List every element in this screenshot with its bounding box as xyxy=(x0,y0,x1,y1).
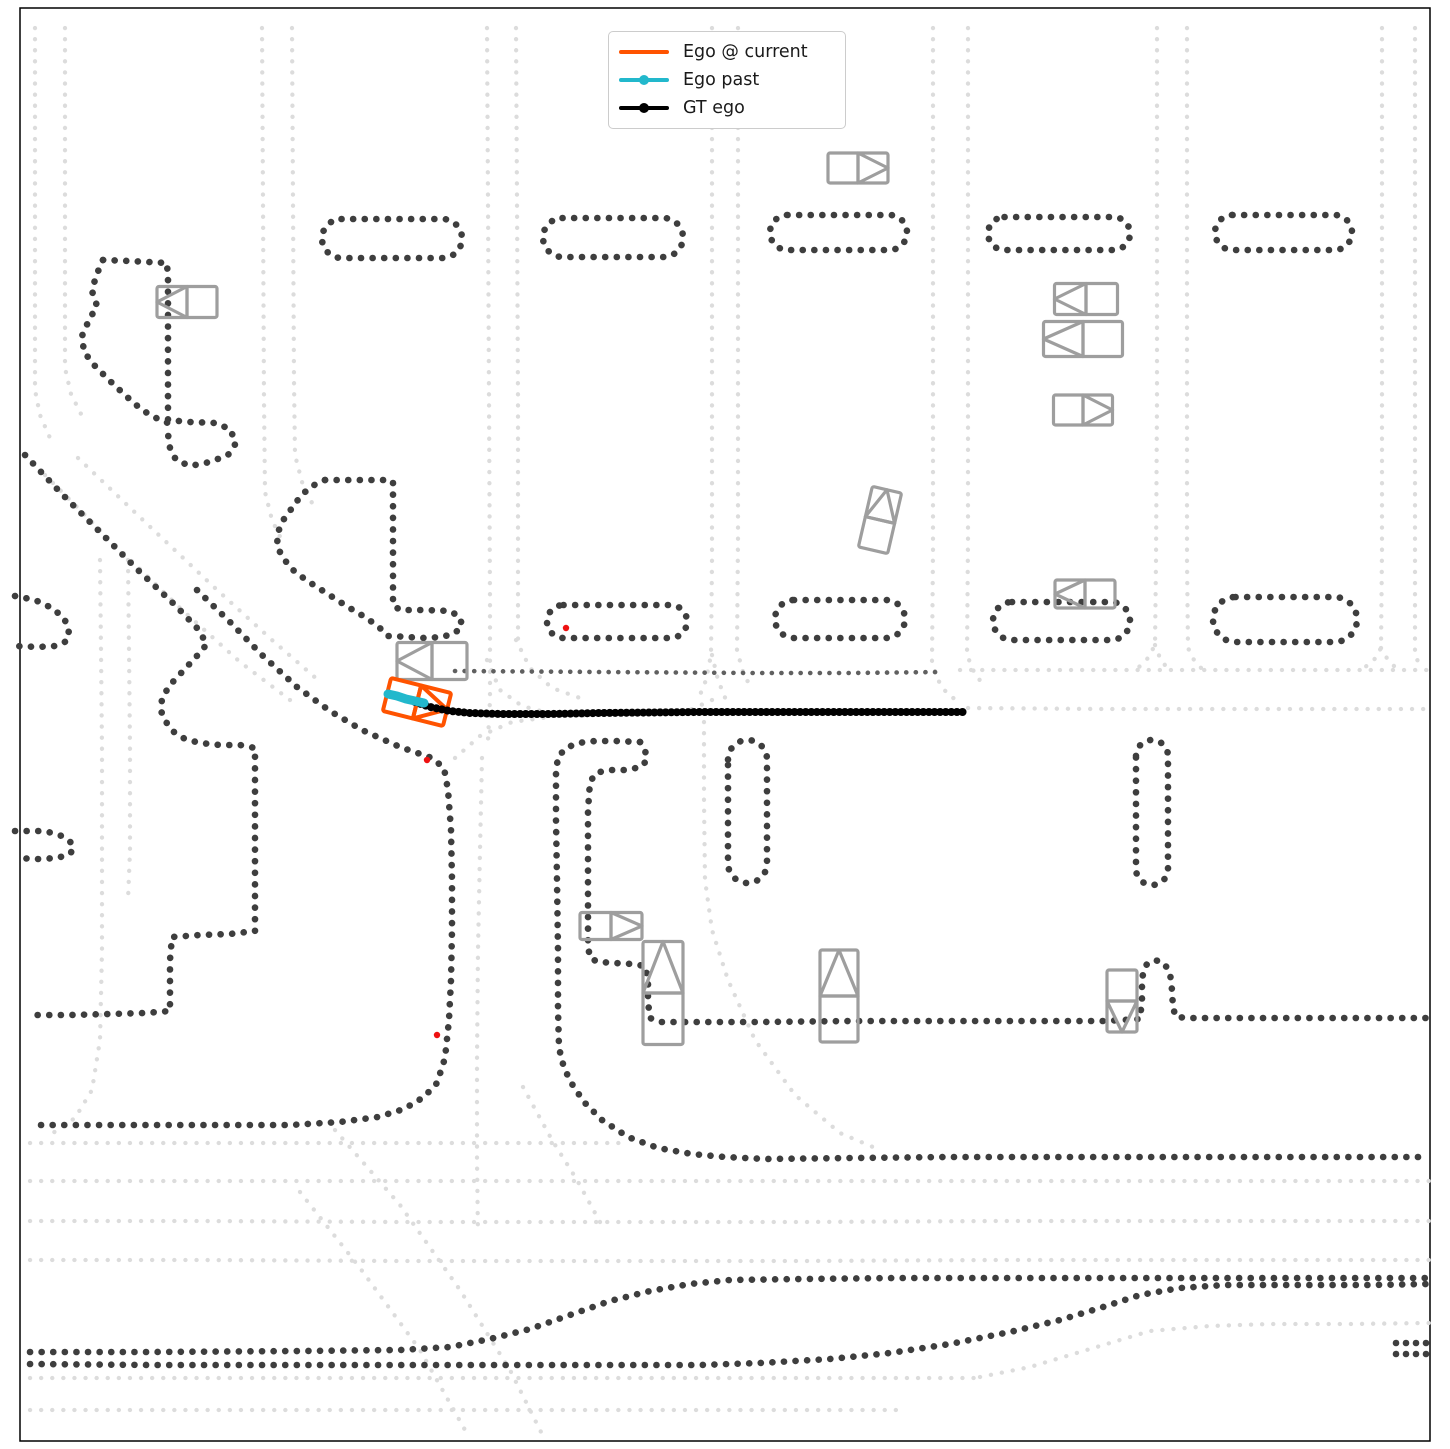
legend-item-ego-past: Ego past xyxy=(619,66,835,94)
marker-dot-grid xyxy=(1393,1351,1400,1358)
red-dot xyxy=(424,757,430,763)
vehicle-box-heading-arrow xyxy=(1044,322,1084,357)
lane-line-light xyxy=(1381,648,1396,668)
legend-line-swatch xyxy=(619,78,669,82)
vehicle-box xyxy=(828,153,888,183)
lane-line-light xyxy=(968,708,1429,709)
lane-line-light xyxy=(523,1087,600,1222)
legend-marker-dot xyxy=(639,103,649,113)
lane-line-light xyxy=(967,28,984,686)
trajectory-plot: Ego @ current Ego past GT ego xyxy=(0,0,1450,1449)
vehicle-box xyxy=(1107,970,1137,1032)
marker-dot-grid xyxy=(1413,1351,1420,1358)
parking-outline xyxy=(770,215,907,250)
lane-line-light xyxy=(455,717,550,758)
scene-canvas xyxy=(0,0,1450,1449)
marker-dot-grid xyxy=(1403,1340,1410,1347)
vehicle-box-heading-arrow xyxy=(1083,395,1113,425)
vehicle-box-heading-arrow xyxy=(157,287,187,318)
legend-item-ego-current: Ego @ current xyxy=(619,38,835,66)
lane-line-light xyxy=(50,560,102,1135)
vehicle-box xyxy=(858,486,901,553)
vehicle-box-heading-arrow xyxy=(1107,1001,1137,1032)
lane-line-light xyxy=(487,28,490,740)
parking-outline xyxy=(1215,215,1352,250)
vehicle-box xyxy=(1055,284,1118,315)
lane-line-light xyxy=(1187,28,1202,669)
parking-outline xyxy=(322,219,462,258)
parking-outline xyxy=(728,740,767,883)
parking-outline xyxy=(988,217,1130,250)
gt-trajectory xyxy=(415,702,963,714)
marker-dot-grid xyxy=(1403,1351,1410,1358)
lane-line-light xyxy=(712,655,726,700)
road-boundary-dark xyxy=(15,596,69,647)
parking-outline xyxy=(1136,740,1168,885)
road-boundary-dark xyxy=(25,455,255,1015)
vehicle-box xyxy=(820,950,858,1042)
road-boundary-dark xyxy=(30,590,452,1125)
vehicle-box xyxy=(643,942,683,1045)
vehicle-box-heading-arrow xyxy=(820,950,858,996)
vehicle-box-heading-arrow xyxy=(858,153,888,183)
parking-outline xyxy=(547,605,687,638)
legend-item-gt-ego: GT ego xyxy=(619,94,835,122)
road-boundary-dark xyxy=(82,260,168,423)
marker-dot-grid xyxy=(1423,1351,1430,1358)
vehicle-box-heading-arrow xyxy=(1055,284,1087,315)
lane-line-light xyxy=(65,28,83,418)
lane-line-light xyxy=(300,1192,465,1430)
road-boundary-dark xyxy=(556,741,1429,1159)
lane-line-light xyxy=(516,640,580,698)
red-dot xyxy=(434,1032,440,1038)
lane-line-light xyxy=(128,560,130,900)
vehicle-box xyxy=(397,643,467,680)
lane-line-light xyxy=(78,458,318,680)
lane-line-light xyxy=(477,758,482,1235)
vehicle-box-heading-arrow xyxy=(611,913,642,940)
road-boundary-dark xyxy=(15,831,73,859)
parking-outline xyxy=(1213,597,1357,642)
lane-line-light xyxy=(932,28,962,703)
legend-line-swatch xyxy=(619,50,669,54)
legend-box: Ego @ current Ego past GT ego xyxy=(608,31,846,129)
lane-line-medium xyxy=(455,671,943,673)
lane-line-light xyxy=(30,1221,1429,1222)
road-boundary-dark xyxy=(30,1278,1429,1352)
marker-dot-grid xyxy=(1423,1340,1430,1347)
lane-line-light xyxy=(1415,28,1421,668)
red-dot xyxy=(563,625,569,631)
vehicle-box-heading-arrow xyxy=(397,643,432,680)
marker-dot-grid xyxy=(1413,1340,1420,1347)
road-boundary-dark xyxy=(388,483,462,638)
lane-line-light xyxy=(516,28,518,640)
lane-line-light xyxy=(335,1130,545,1440)
lane-line-light xyxy=(262,28,284,545)
vehicle-box xyxy=(1054,395,1113,425)
marker-dot-grid xyxy=(1393,1340,1400,1347)
legend-item-label: Ego @ current xyxy=(683,42,808,62)
road-boundary-dark xyxy=(588,742,1429,1022)
road-boundary-dark xyxy=(277,480,388,636)
legend-item-label: GT ego xyxy=(683,98,745,118)
legend-line-swatch xyxy=(619,106,669,110)
lane-line-light xyxy=(30,1260,1429,1261)
lane-line-light xyxy=(1138,28,1157,668)
lane-line-light xyxy=(487,660,590,716)
lane-line-light xyxy=(45,475,290,700)
lane-line-light xyxy=(1364,28,1382,668)
lane-line-light xyxy=(292,28,313,505)
parking-outline xyxy=(543,218,683,257)
vehicle-box xyxy=(1044,322,1123,357)
plot-frame xyxy=(20,8,1430,1441)
lane-line-light xyxy=(1155,645,1167,668)
legend-marker-dot xyxy=(639,75,649,85)
lane-line-light xyxy=(35,28,50,438)
legend-item-label: Ego past xyxy=(683,70,759,90)
parking-outline xyxy=(775,600,905,638)
lane-line-light xyxy=(980,1323,1429,1377)
